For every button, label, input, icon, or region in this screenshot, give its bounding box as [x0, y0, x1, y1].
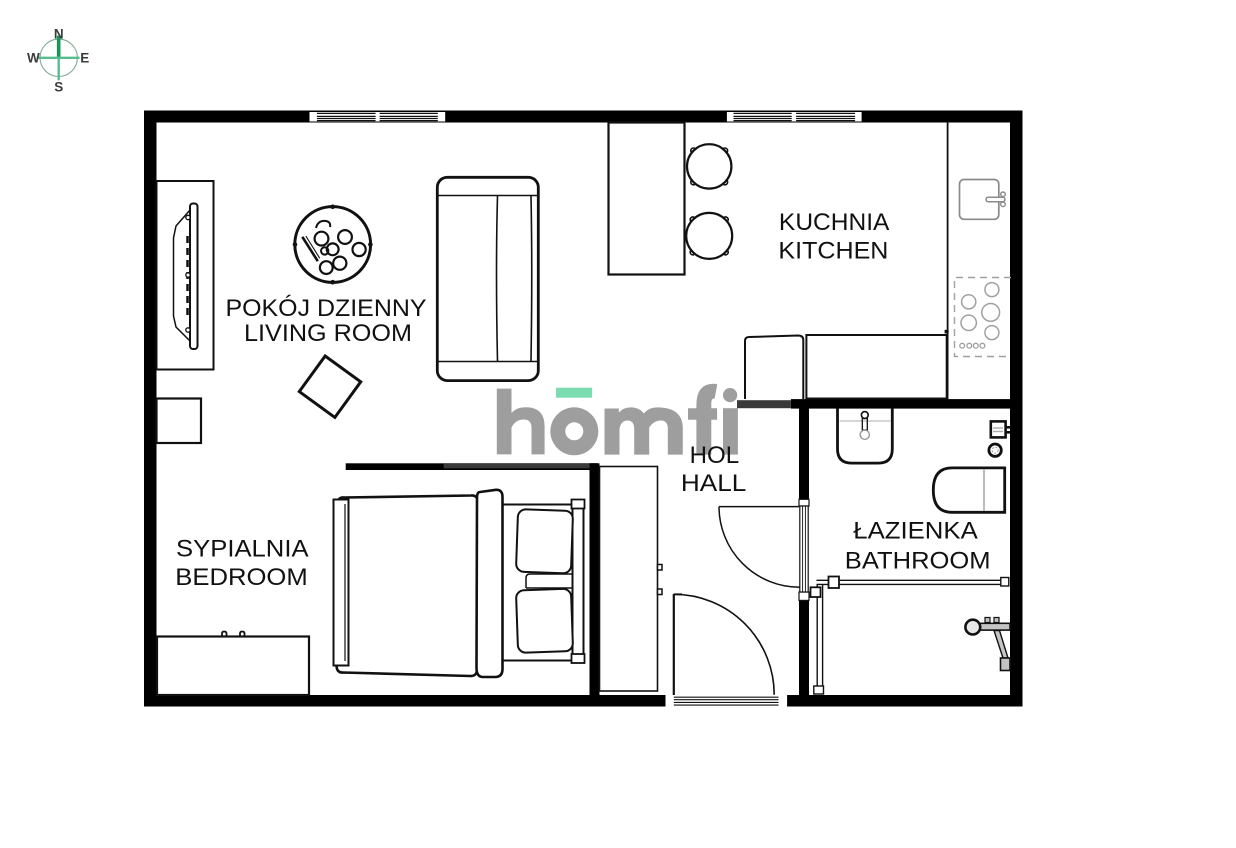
svg-text:BATHROOM: BATHROOM	[845, 547, 991, 574]
svg-text:KUCHNIA: KUCHNIA	[779, 209, 890, 236]
svg-text:KITCHEN: KITCHEN	[778, 237, 888, 264]
svg-text:SYPIALNIA: SYPIALNIA	[176, 535, 309, 562]
svg-text:ŁAZIENKA: ŁAZIENKA	[853, 518, 978, 545]
svg-text:N: N	[54, 27, 64, 42]
svg-text:S: S	[54, 80, 63, 95]
svg-text:E: E	[80, 50, 89, 65]
svg-text:HOL: HOL	[690, 442, 740, 469]
svg-text:POKÓJ DZIENNY: POKÓJ DZIENNY	[226, 295, 427, 322]
svg-text:LIVING ROOM: LIVING ROOM	[244, 320, 412, 347]
svg-text:W: W	[27, 50, 40, 65]
svg-text:HALL: HALL	[681, 470, 747, 497]
svg-text:BEDROOM: BEDROOM	[175, 564, 308, 591]
